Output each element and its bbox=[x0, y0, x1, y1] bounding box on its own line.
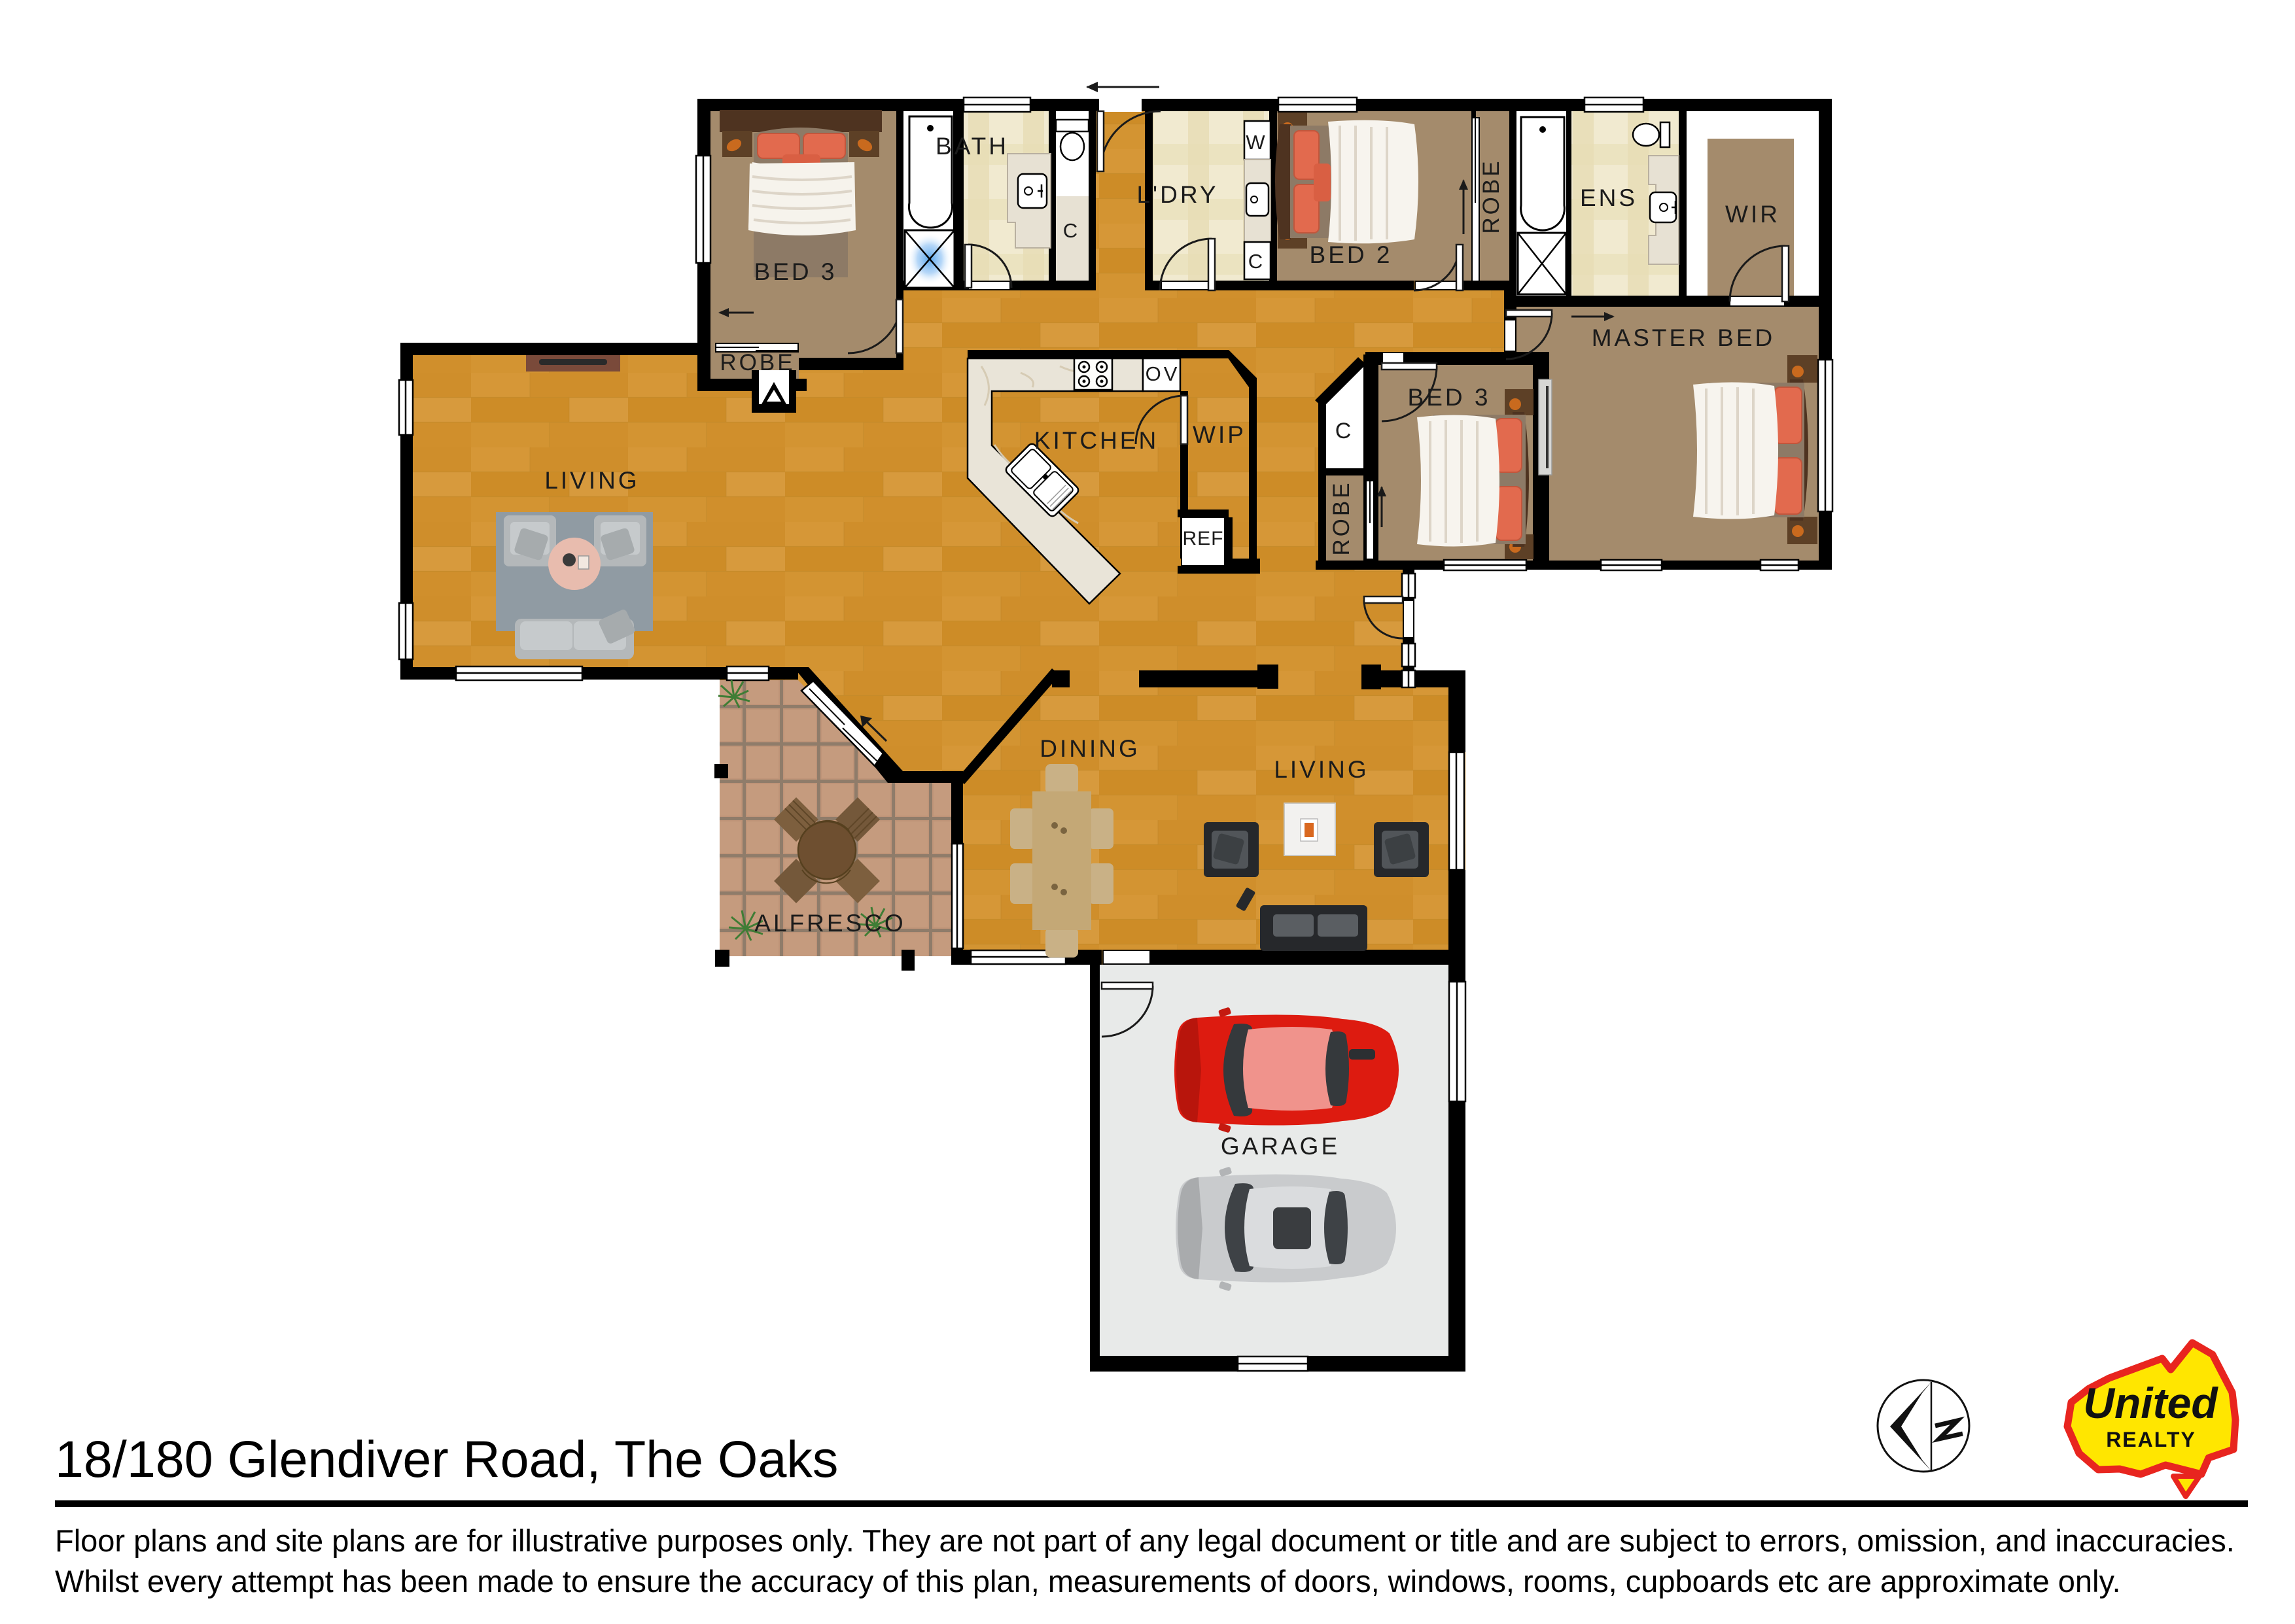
svg-text:GARAGE: GARAGE bbox=[1221, 1133, 1340, 1160]
svg-text:BATH: BATH bbox=[936, 133, 1009, 160]
svg-text:OV: OV bbox=[1146, 362, 1180, 385]
svg-text:Floor plans and site plans are: Floor plans and site plans are for illus… bbox=[55, 1523, 2235, 1558]
svg-text:ROBE: ROBE bbox=[1479, 158, 1504, 233]
svg-text:ALFRESCO: ALFRESCO bbox=[754, 910, 905, 937]
svg-text:REF: REF bbox=[1183, 528, 1224, 549]
svg-text:ENS: ENS bbox=[1580, 184, 1638, 211]
svg-text:C: C bbox=[1335, 419, 1354, 443]
svg-text:LIVING: LIVING bbox=[544, 467, 639, 494]
svg-text:MASTER BED: MASTER BED bbox=[1592, 324, 1776, 351]
svg-text:REALTY: REALTY bbox=[2106, 1428, 2196, 1451]
svg-text:C: C bbox=[1248, 250, 1265, 273]
svg-text:W: W bbox=[1246, 131, 1267, 154]
svg-text:L'DRY: L'DRY bbox=[1136, 181, 1218, 208]
svg-text:Whilst every attempt has been: Whilst every attempt has been made to en… bbox=[55, 1564, 2121, 1598]
svg-text:ROBE: ROBE bbox=[1329, 480, 1354, 555]
svg-text:DINING: DINING bbox=[1040, 735, 1140, 762]
svg-text:LIVING: LIVING bbox=[1274, 756, 1369, 783]
svg-text:KITCHEN: KITCHEN bbox=[1034, 427, 1159, 454]
svg-text:18/180 Glendiver Road, The Oak: 18/180 Glendiver Road, The Oaks bbox=[55, 1430, 838, 1488]
svg-text:BED 2: BED 2 bbox=[1310, 241, 1393, 268]
svg-text:C: C bbox=[1063, 219, 1080, 242]
svg-text:BED 3: BED 3 bbox=[754, 258, 837, 285]
svg-text:WIP: WIP bbox=[1193, 421, 1246, 448]
svg-text:United: United bbox=[2083, 1379, 2218, 1427]
svg-text:BED 3: BED 3 bbox=[1408, 384, 1491, 411]
svg-text:ROBE: ROBE bbox=[720, 350, 795, 375]
svg-text:WIR: WIR bbox=[1725, 201, 1780, 228]
